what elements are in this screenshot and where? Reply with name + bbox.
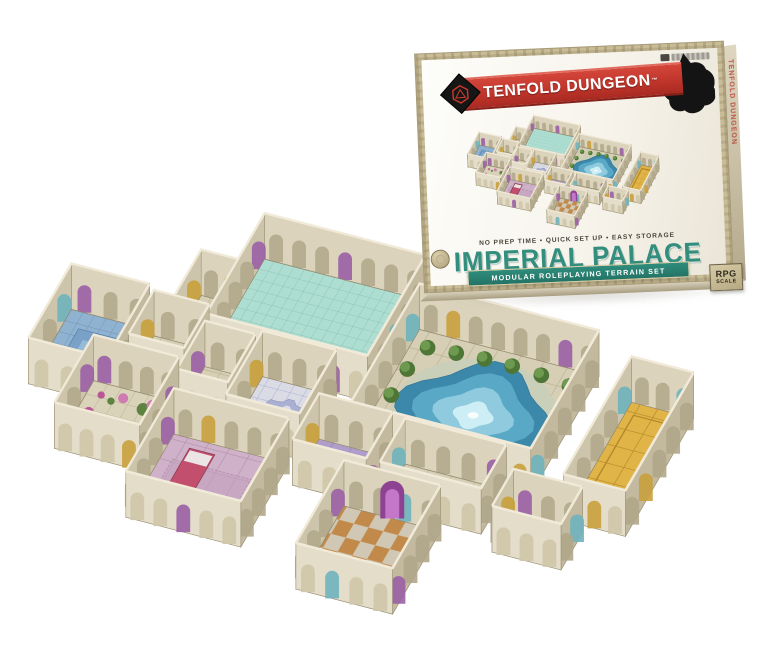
product-box: TENFOLD DUNGEON TENFOLD DUNGEON™	[415, 42, 733, 293]
brand-name: TENFOLD DUNGEON	[483, 72, 652, 102]
room-east-room	[490, 469, 584, 570]
room-east-room	[602, 185, 630, 215]
box-front-face: TENFOLD DUNGEON™ NO PREP TIME • QUICK SE…	[421, 48, 726, 286]
rpg-scale-badge: RPG SCALE	[709, 263, 743, 291]
rpg-scale-line2: SCALE	[716, 279, 737, 285]
product-photo-stage: TENFOLD DUNGEON TENFOLD DUNGEON™	[0, 0, 757, 668]
trademark: ™	[651, 77, 658, 83]
